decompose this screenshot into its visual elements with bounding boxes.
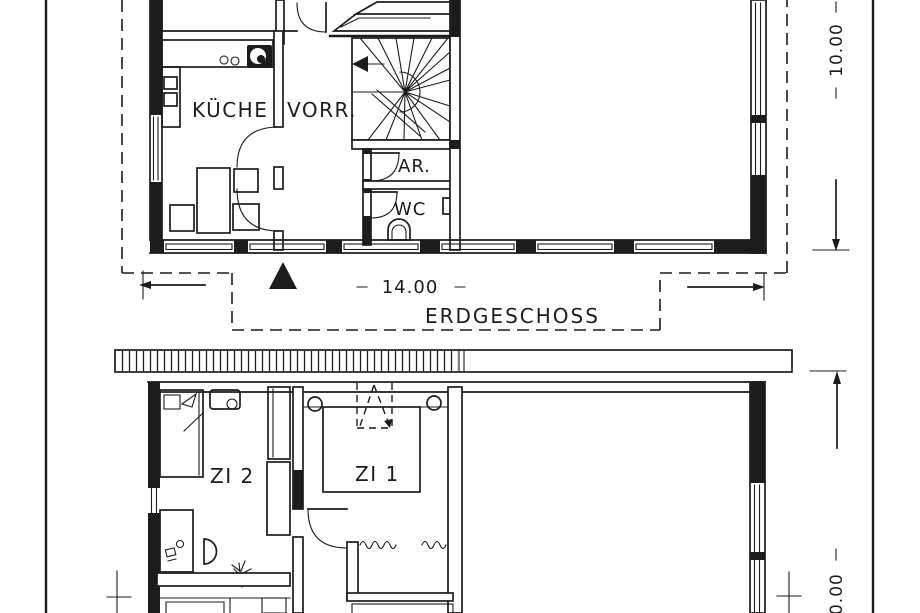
entrance-steps-icon: [334, 2, 452, 31]
room2-label: ZI 2: [210, 464, 255, 488]
depth-dimension-label-ground: 10.00: [827, 23, 847, 77]
pantry-label: VORR.: [287, 98, 357, 122]
blanket-icon: [182, 394, 196, 407]
uf-bath: [347, 542, 453, 613]
balcony-hatching: [117, 351, 458, 371]
storage-label: AR.: [398, 156, 431, 177]
uf-right-wall: [750, 382, 765, 613]
entrance-door-swing: [297, 3, 326, 32]
gf-left-wall: [150, 0, 162, 240]
upper-floor-plan: ZI 2: [115, 350, 792, 613]
floor-plan-sheet: KÜCHE VORR.: [0, 0, 920, 613]
wc-label: WC: [394, 199, 426, 220]
door-swing: [237, 127, 279, 167]
gf-staircase: [352, 38, 450, 149]
uf-stair-hatch: [352, 604, 453, 613]
uf-room-zi1: ZI 1: [303, 383, 448, 492]
depth-dimension-upper: 10.00: [810, 371, 847, 613]
cut-room-fixture: [262, 598, 286, 613]
uf-divider-wall: [293, 387, 347, 613]
kitchen-label: KÜCHE: [192, 98, 268, 122]
dimension-tick-left: [107, 571, 131, 613]
floor-title: ERDGESCHOSS: [425, 304, 600, 328]
gf-entrance: [297, 2, 452, 36]
dimension-tick-right: [777, 572, 801, 613]
wardrobe-icon: [268, 387, 290, 459]
room1-label: ZI 1: [355, 462, 400, 486]
kitchen-appliance-icon: [164, 77, 177, 89]
wardrobe-icon: [267, 462, 290, 535]
width-dimension-label: 14.00: [382, 277, 439, 298]
gf-storage-room: AR.: [363, 149, 452, 245]
depth-dimension-ground: 10.00: [813, 2, 849, 251]
bedside-lamp-icon: [308, 397, 322, 411]
uf-room-zi2: ZI 2: [160, 387, 290, 587]
toilet-icon: [388, 219, 410, 240]
gf-wc: WC: [371, 192, 452, 240]
gf-ar-wc-wall: [363, 181, 452, 189]
closet-wavy-icon: [360, 542, 446, 549]
balcony-wall: [115, 350, 792, 372]
desk-icon: [160, 510, 193, 572]
ground-floor-plan: KÜCHE VORR.: [150, 0, 766, 253]
kitchen-table: [197, 168, 230, 233]
gf-kitchen: KÜCHE: [162, 40, 273, 233]
stair-break-line: [372, 90, 425, 136]
depth-dimension-label-upper: 10.00: [827, 573, 847, 613]
door-swing: [371, 153, 399, 181]
flue-dashed-icon: [357, 383, 392, 428]
door-swing: [308, 509, 347, 548]
uf-hall-wall: [157, 573, 290, 613]
stair-direction-arrow-icon: [352, 56, 368, 72]
stair-treads: [352, 38, 450, 140]
gf-right-wall: [751, 0, 766, 253]
bed-single-icon: [160, 390, 203, 477]
floor-plan-drawing: KÜCHE VORR.: [0, 0, 920, 613]
width-dimension: 14.00: [139, 271, 765, 300]
uf-middle-wall: [448, 387, 462, 613]
gf-middle-wall: [450, 0, 460, 250]
kitchen-chair: [234, 169, 258, 192]
pillow-icon: [164, 395, 180, 409]
bedside-lamp-icon: [427, 396, 441, 410]
gf-stair-wall: [352, 140, 450, 149]
entrance-marker-triangle: [269, 262, 297, 289]
kitchen-sink-icon: [220, 56, 228, 64]
kitchen-stove-icon: [247, 45, 272, 68]
kitchen-chair: [170, 205, 194, 231]
chair-icon: [204, 539, 217, 564]
kitchen-appliance-icon: [164, 93, 177, 106]
door-swing: [237, 189, 279, 231]
gf-pantry: VORR.: [287, 98, 357, 122]
ground-floor-annotations: 14.00 ERDGESCHOSS 10.00: [122, 0, 849, 330]
